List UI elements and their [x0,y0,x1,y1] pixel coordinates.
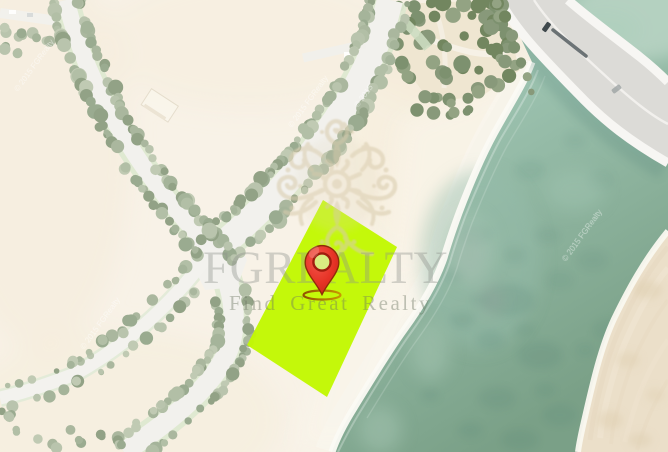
svg-text:Find Great Realty: Find Great Realty [229,291,432,315]
